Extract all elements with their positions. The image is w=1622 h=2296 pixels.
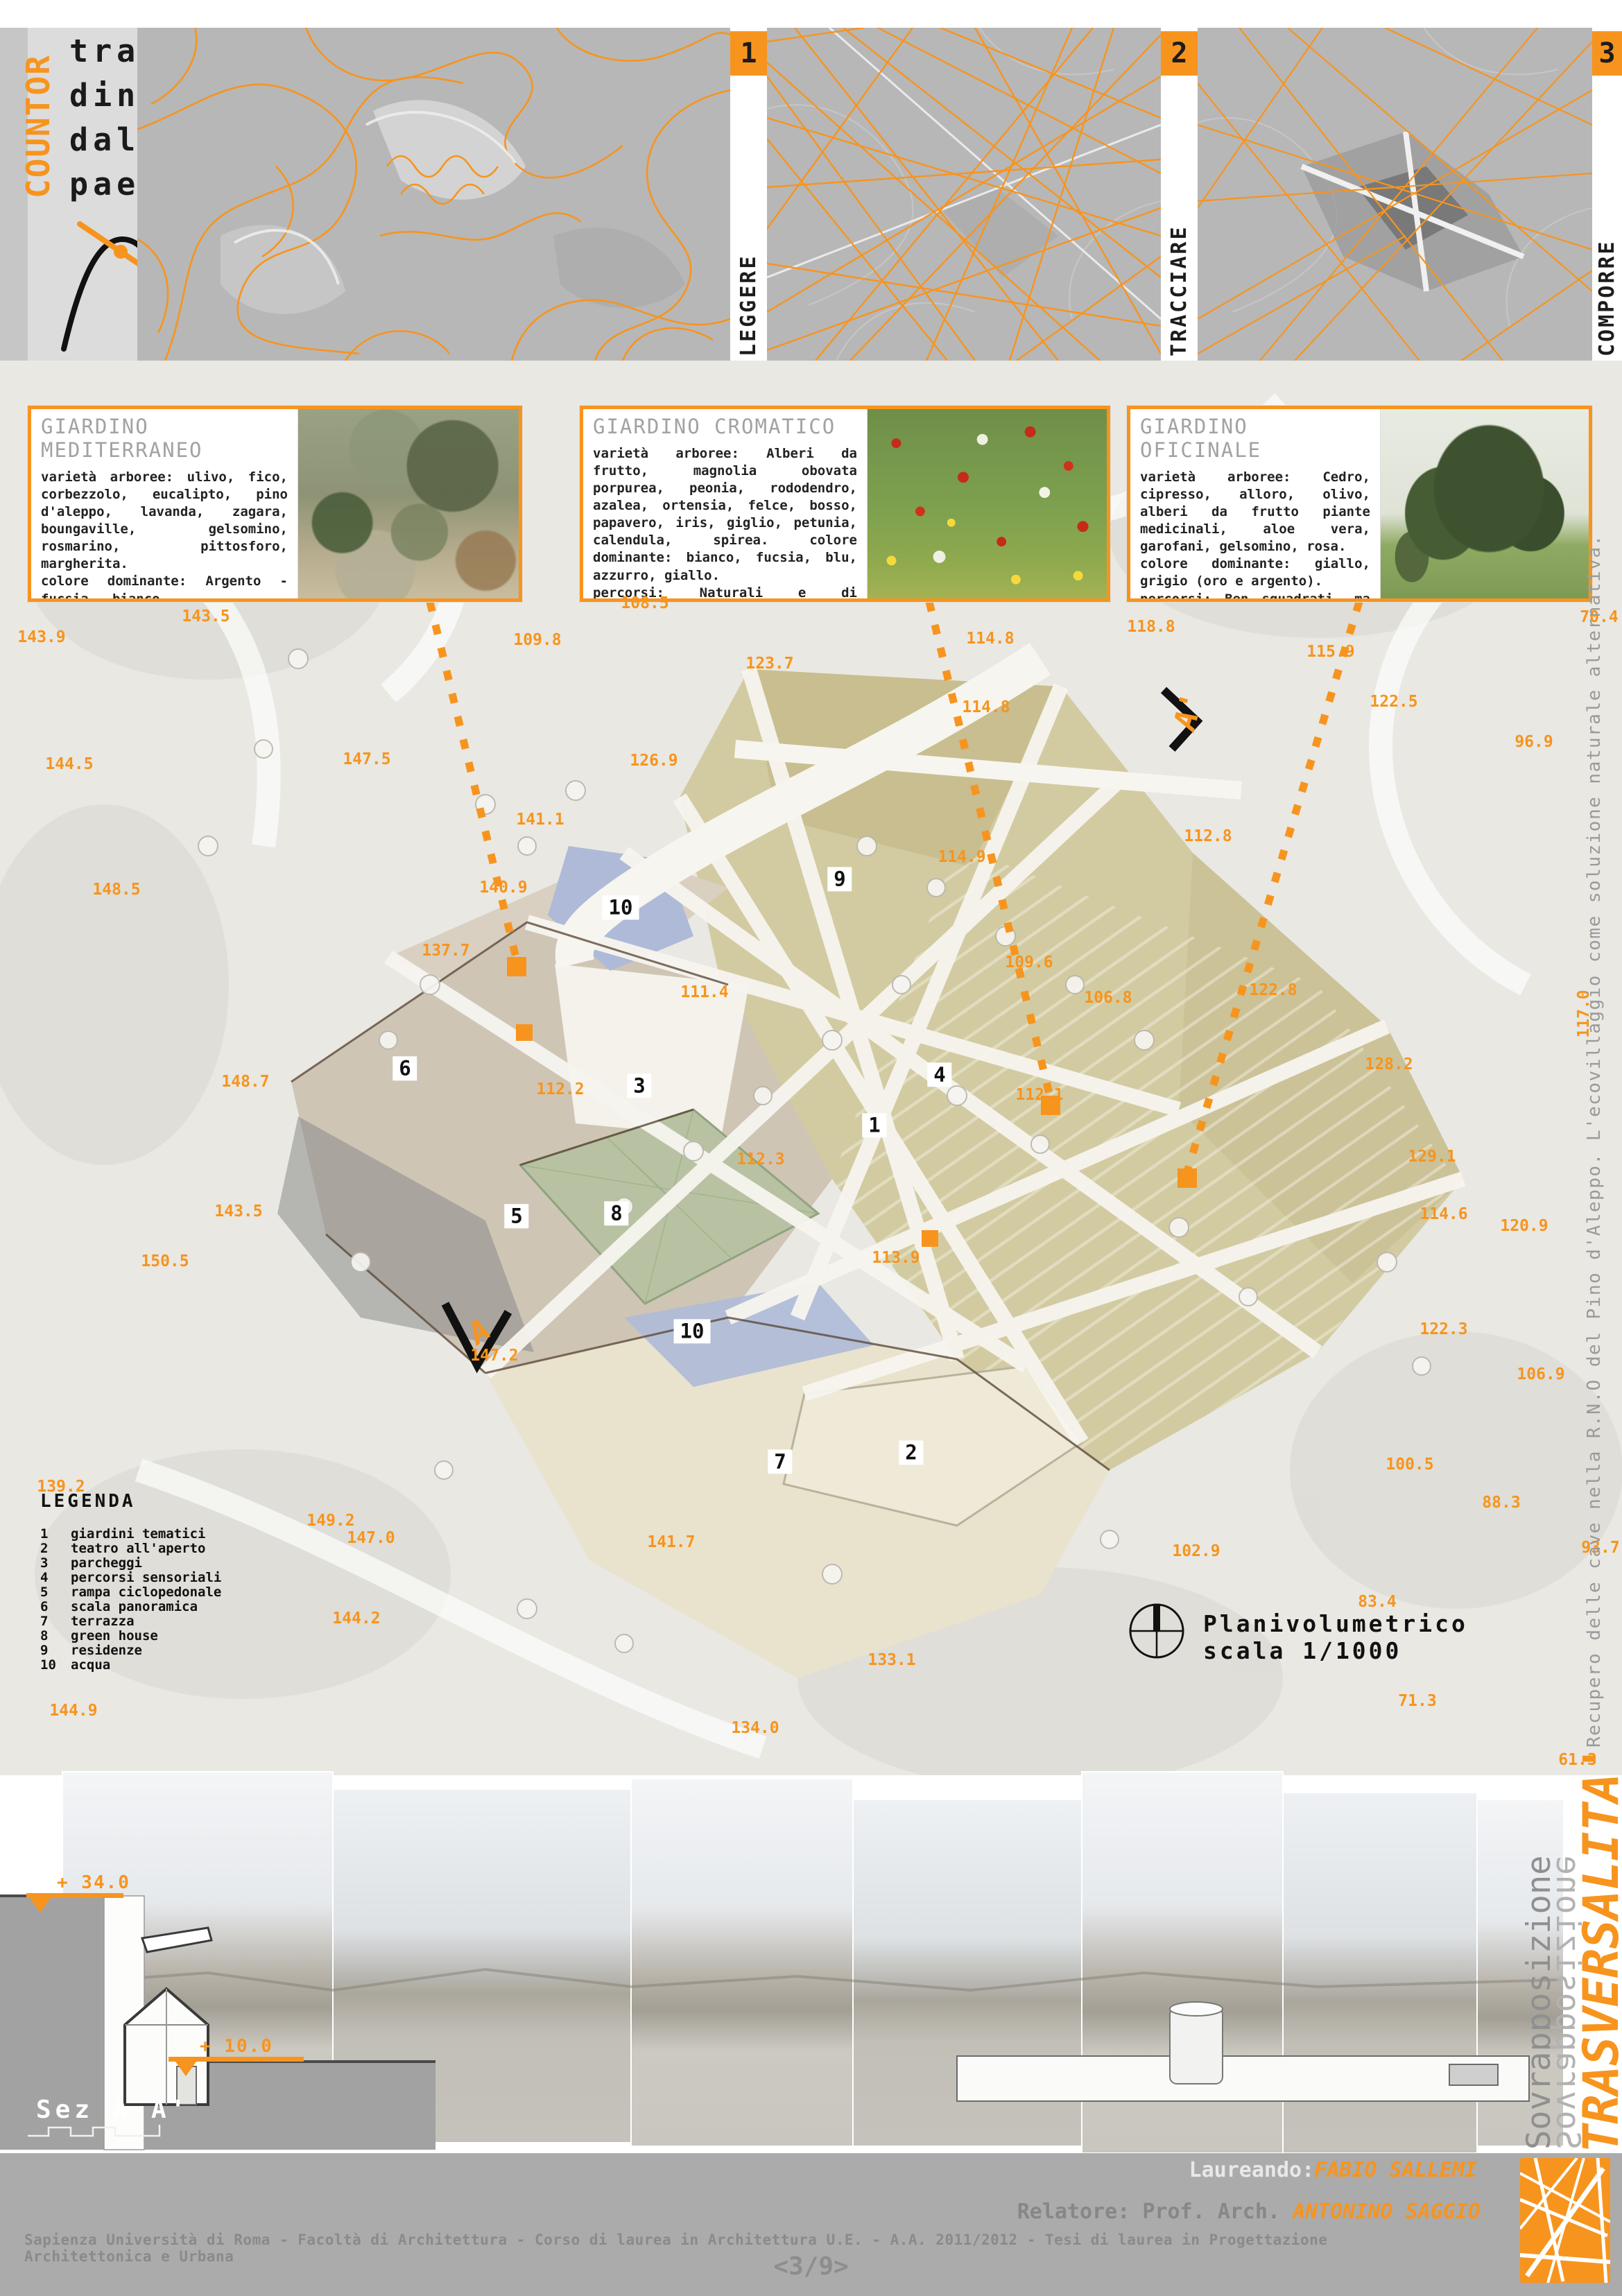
laureando-name: FABIO SALLEMI	[1314, 2158, 1477, 2182]
flower-field-photo	[867, 409, 1107, 598]
legend-title: LEGENDA	[40, 1491, 221, 1512]
legend-item: 10acqua	[40, 1658, 221, 1673]
garden-description: varietà arboree: ulivo, fico, corbezzolo…	[41, 469, 288, 598]
map-panel-comporre	[1198, 28, 1592, 361]
garden-title: GIARDINO OFICINALE	[1140, 415, 1370, 462]
section-title: Sez A-A'	[36, 2096, 189, 2124]
legend-item: 9residenze	[40, 1643, 221, 1658]
legend-item: 1giardini tematici	[40, 1527, 221, 1542]
legend-item: 4percorsi sensoriali	[40, 1571, 221, 1585]
garden-title: GIARDINO MEDITERRANEO	[41, 415, 288, 462]
mediterranean-garden-photo	[297, 409, 519, 598]
panel-strip-2: 2 TRACCIARE	[1161, 28, 1198, 361]
legend-item: 8green house	[40, 1629, 221, 1643]
legend-item: 5rampa ciclopedonale	[40, 1585, 221, 1600]
panel-label-tracciare: TRACCIARE	[1161, 148, 1198, 356]
panel-label-comporre: COMPORRE	[1592, 148, 1622, 356]
legend-item: 7terrazza	[40, 1614, 221, 1629]
panel-label-leggere: LEGGERE	[730, 148, 767, 356]
garden-box-oficinale: GIARDINO OFICINALE varietà arboree: Cedr…	[1127, 406, 1592, 602]
garden-box-mediterraneo: GIARDINO MEDITERRANEO varietà arboree: u…	[28, 406, 522, 602]
laureando-line: Laureando:FABIO SALLEMI	[763, 2158, 1477, 2182]
legend-item: 6scala panoramica	[40, 1600, 221, 1614]
panel-number-badge: 1	[730, 31, 767, 76]
plan-scale-title: Planivolumetrico	[1203, 1610, 1468, 1637]
garden-box-cromatico: GIARDINO CROMATICO varietà arboree: Albe…	[580, 406, 1110, 602]
garden-title: GIARDINO CROMATICO	[593, 415, 857, 438]
plan-scale-value: scala 1/1000	[1203, 1637, 1468, 1664]
plan-scale-block: Planivolumetrico scala 1/1000	[1203, 1610, 1468, 1664]
countor-vertical-logo: COUNTOR	[19, 32, 55, 198]
relatore-name: ANTONINO SAGGIO	[1293, 2200, 1481, 2224]
map-panel-tracciare	[767, 28, 1161, 361]
panorama-and-section	[0, 1761, 1622, 2157]
north-icon	[1130, 1605, 1183, 1657]
panel-strip-1: 1 LEGGERE	[730, 28, 767, 361]
laureando-label: Laureando:	[1189, 2158, 1315, 2182]
garden-description: varietà arboree: Alberi da frutto, magno…	[593, 445, 857, 598]
legend-list: 1giardini tematici2teatro all'aperto3par…	[40, 1527, 221, 1673]
right-edge-caption: Recupero delle cave nella R.N.O del Pino…	[1584, 596, 1614, 1747]
thesis-presentation-board: { "accent": "#F7941E", "header": { "logo…	[0, 0, 1622, 2296]
page-number: <3/9>	[0, 2252, 1622, 2281]
relatore-line: Relatore: Prof. Arch. ANTONINO SAGGIO	[763, 2200, 1481, 2224]
side-title-orange: TRASVERSALITA'	[1573, 1761, 1622, 2153]
legend-item: 3parcheggi	[40, 1556, 221, 1571]
elevation-label-10: + 10.0	[200, 2036, 273, 2057]
officinal-garden-photo	[1380, 409, 1589, 598]
panel-number-badge: 2	[1161, 31, 1198, 76]
elevation-label-34: + 34.0	[57, 1872, 130, 1893]
panel-number-badge: 3	[1592, 31, 1622, 76]
garden-description: varietà arboree: Cedro, cipresso, alloro…	[1140, 469, 1370, 598]
legend-item: 2teatro all'aperto	[40, 1542, 221, 1556]
legend: LEGENDA 1giardini tematici2teatro all'ap…	[40, 1491, 221, 1673]
panorama-building	[957, 2056, 1529, 2101]
water-tank	[1170, 2002, 1223, 2084]
map-panel-leggere	[137, 28, 730, 361]
panel-strip-3: 3 COMPORRE	[1592, 28, 1622, 361]
relatore-label: Relatore: Prof. Arch.	[1017, 2200, 1293, 2224]
trajectories-logo	[1520, 2158, 1610, 2283]
